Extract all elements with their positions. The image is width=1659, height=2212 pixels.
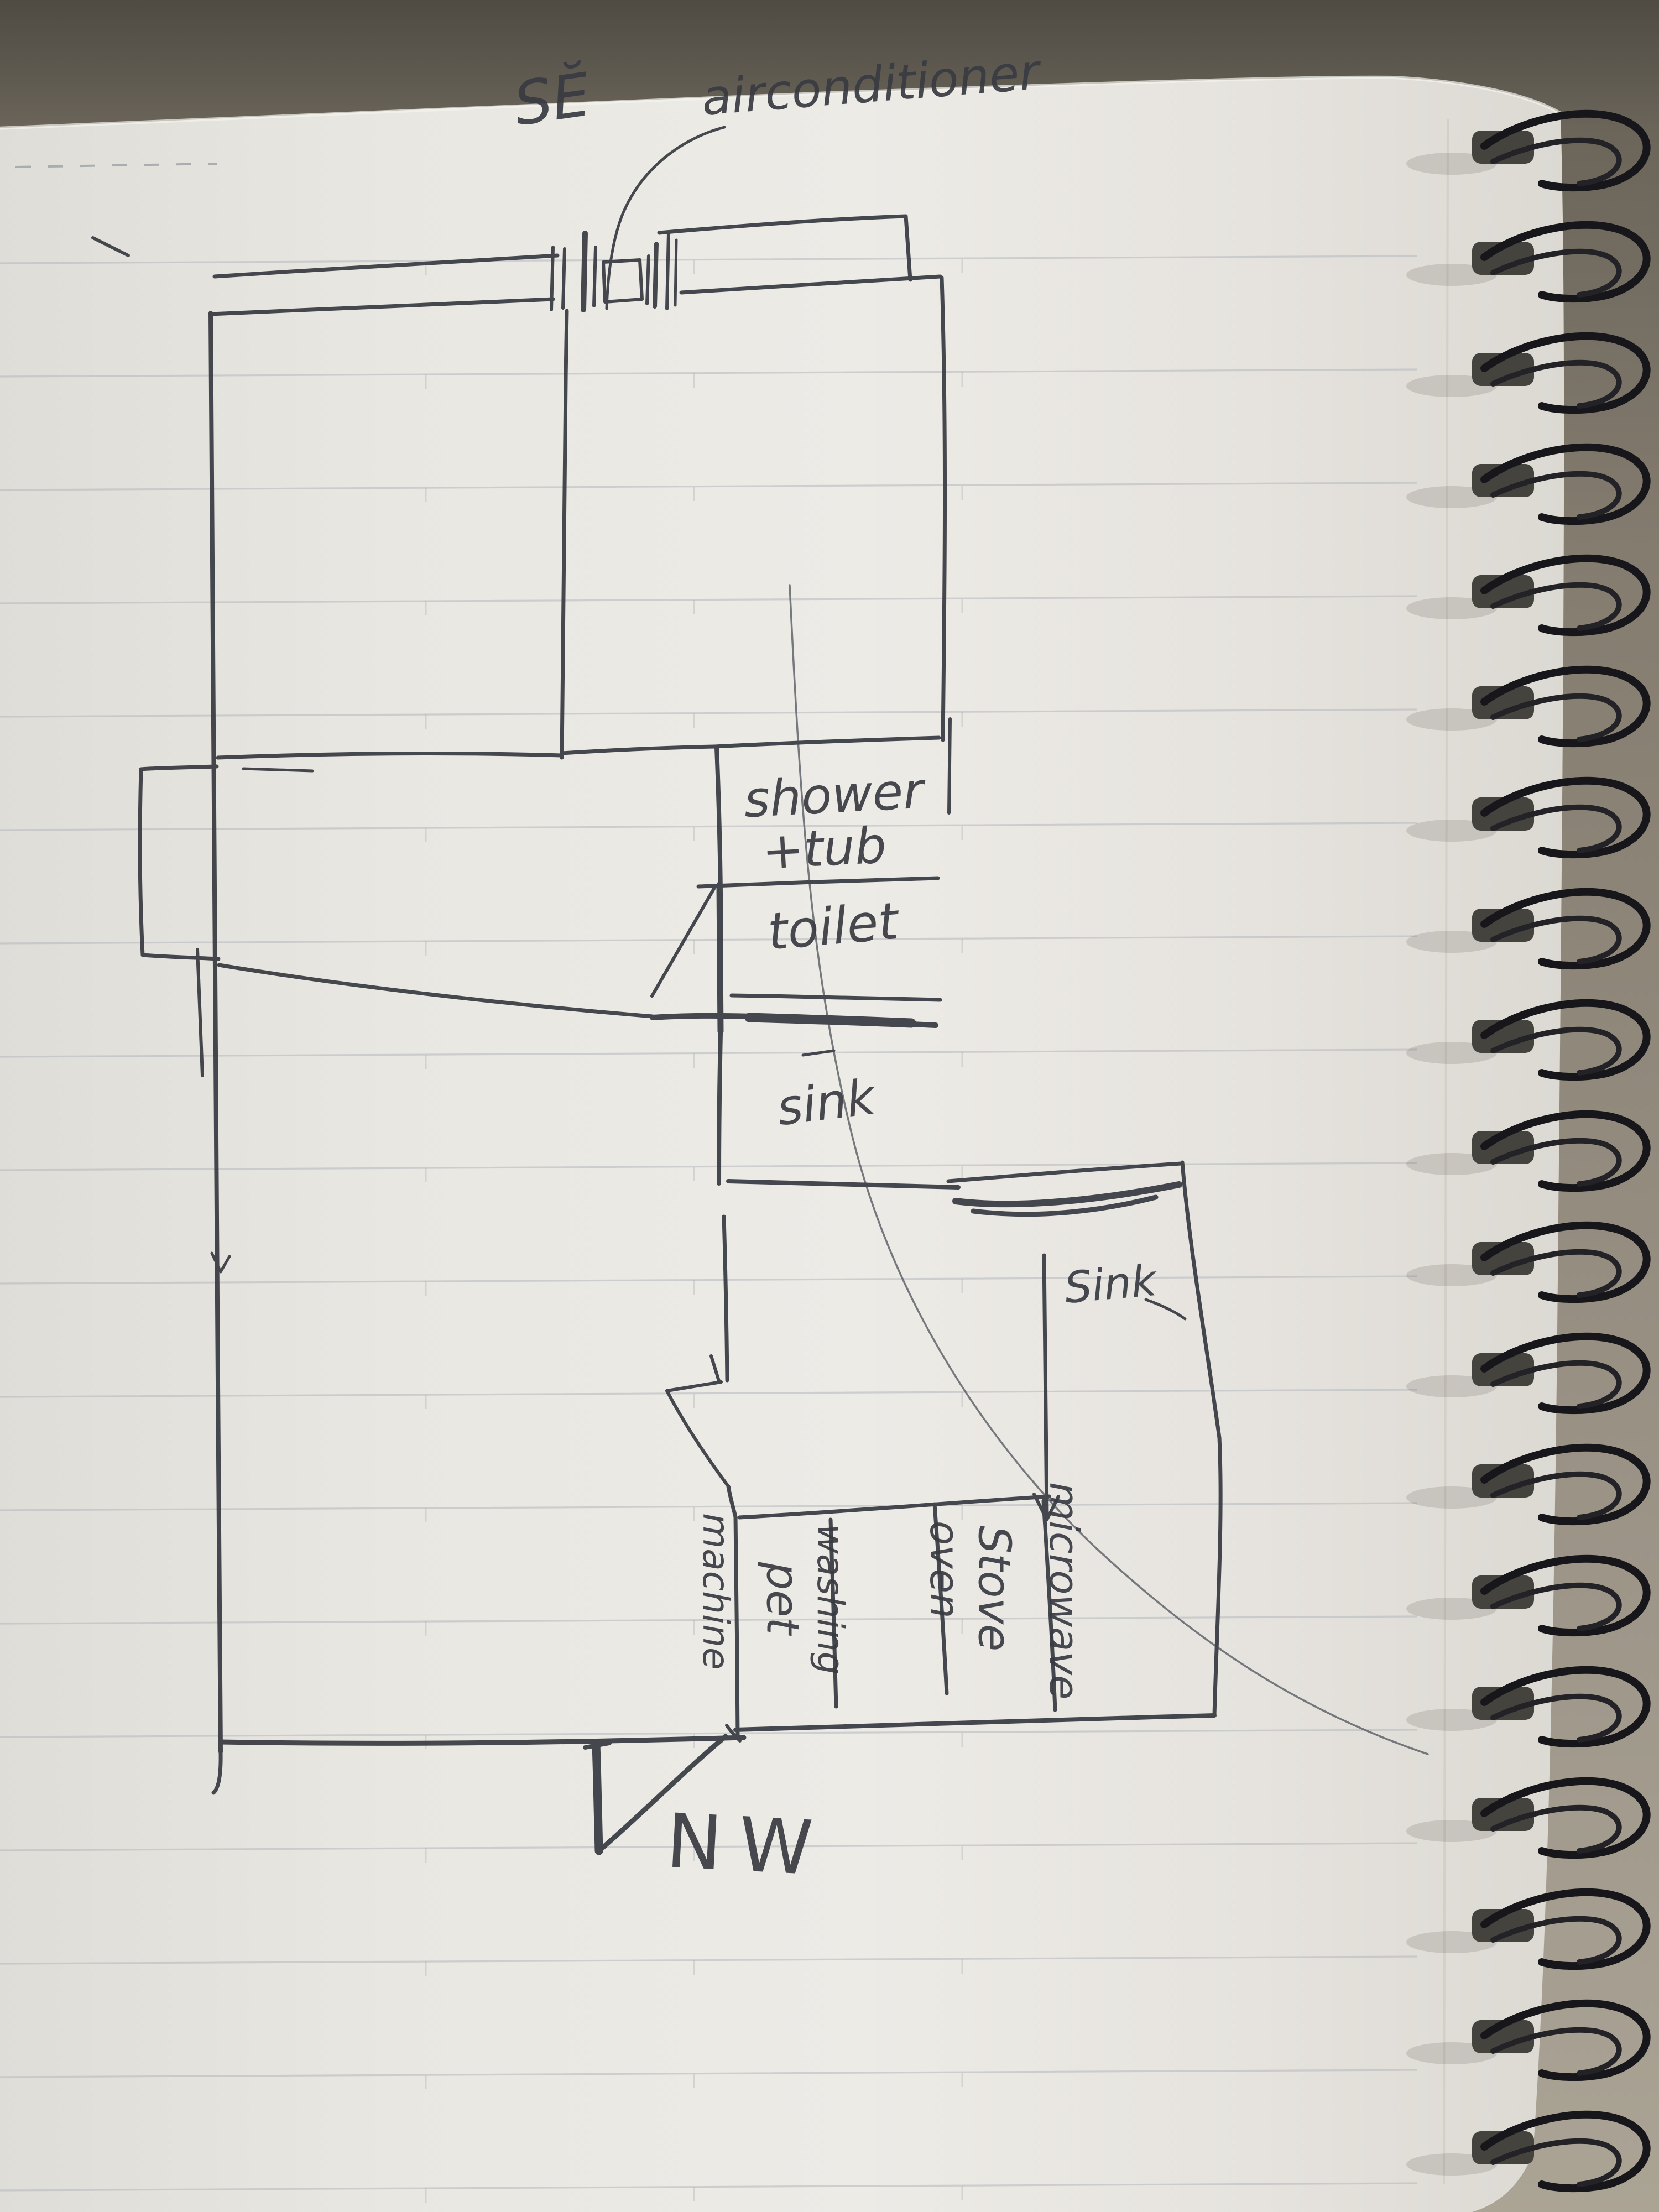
shower-tub-label-line2: +tub	[760, 816, 888, 881]
kitchen-sink-label: Sink	[1062, 1256, 1158, 1313]
bathroom-left-wall-thick	[719, 885, 721, 1031]
washing-machine-label: washing machine	[843, 1513, 926, 1701]
washing-machine-label-line2: machine	[696, 1513, 734, 1701]
microwave-oven-label: microwave oven	[1075, 1482, 1164, 1714]
stove-label: Stove	[969, 1526, 1020, 1692]
washing-machine-label-line1: washing	[811, 1513, 849, 1701]
toilet-sink-divider-blob	[749, 1018, 911, 1023]
microwave-oven-label-line1: microwave	[1044, 1482, 1084, 1714]
sink-area-left-wall	[1044, 1255, 1047, 1516]
toilet-label: toilet	[765, 891, 901, 962]
notebook-paper	[0, 77, 1564, 2212]
nw-arrow-vertical	[596, 1744, 599, 1851]
bathroom-sink-label: sink	[774, 1068, 878, 1137]
microwave-oven-label-line2: oven	[925, 1482, 964, 1714]
notebook-photo: SĔ airconditioner shower +tub toilet sin…	[0, 0, 1659, 2212]
pet-label: pet	[757, 1562, 808, 1673]
compass-nw-label: NW	[664, 1797, 831, 1892]
right-wall-double-stroke	[949, 719, 950, 813]
compass-se-label: SĔ	[510, 60, 594, 139]
